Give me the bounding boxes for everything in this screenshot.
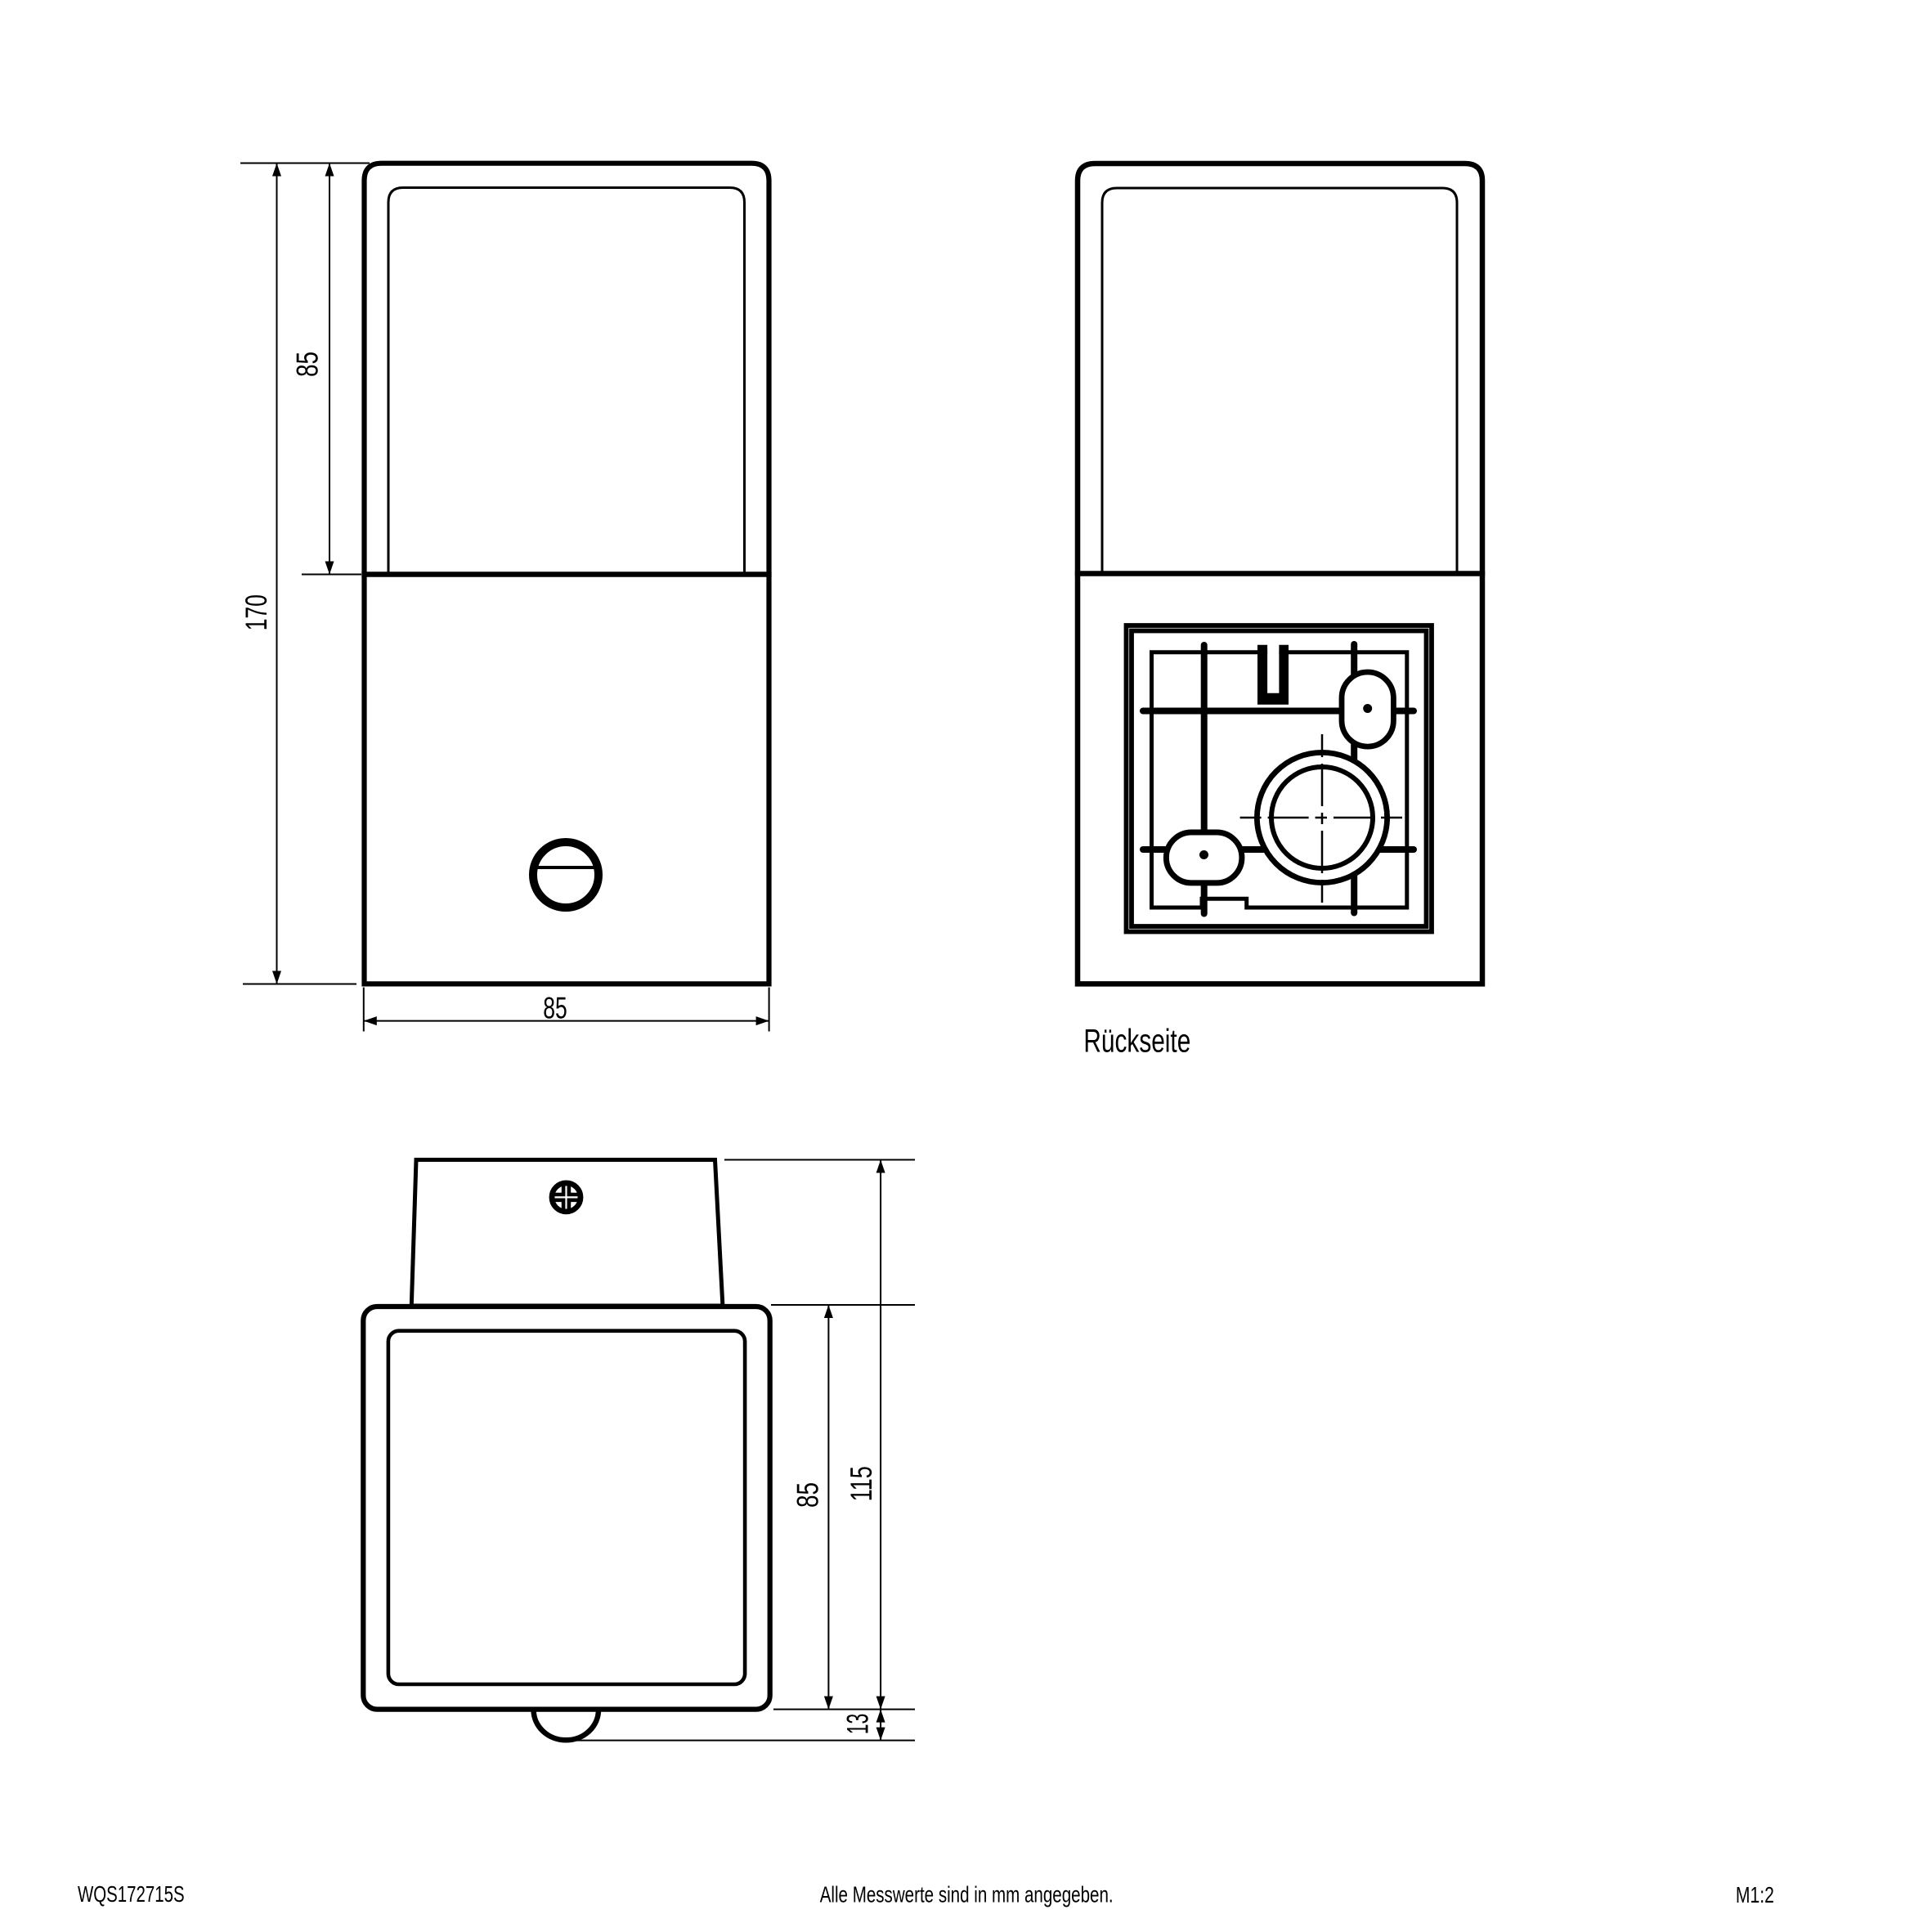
svg-text:Rückseite: Rückseite (1083, 1024, 1190, 1060)
svg-text:WQS172715S: WQS172715S (78, 1881, 185, 1907)
svg-text:13: 13 (840, 1714, 874, 1735)
svg-text:M1:2: M1:2 (1736, 1882, 1774, 1907)
svg-text:115: 115 (845, 1466, 878, 1501)
svg-text:Alle Messwerte sind in mm ange: Alle Messwerte sind in mm angegeben. (820, 1882, 1114, 1907)
svg-text:170: 170 (240, 594, 273, 630)
svg-text:85: 85 (543, 992, 567, 1025)
svg-text:85: 85 (291, 352, 325, 377)
svg-text:85: 85 (791, 1482, 824, 1508)
